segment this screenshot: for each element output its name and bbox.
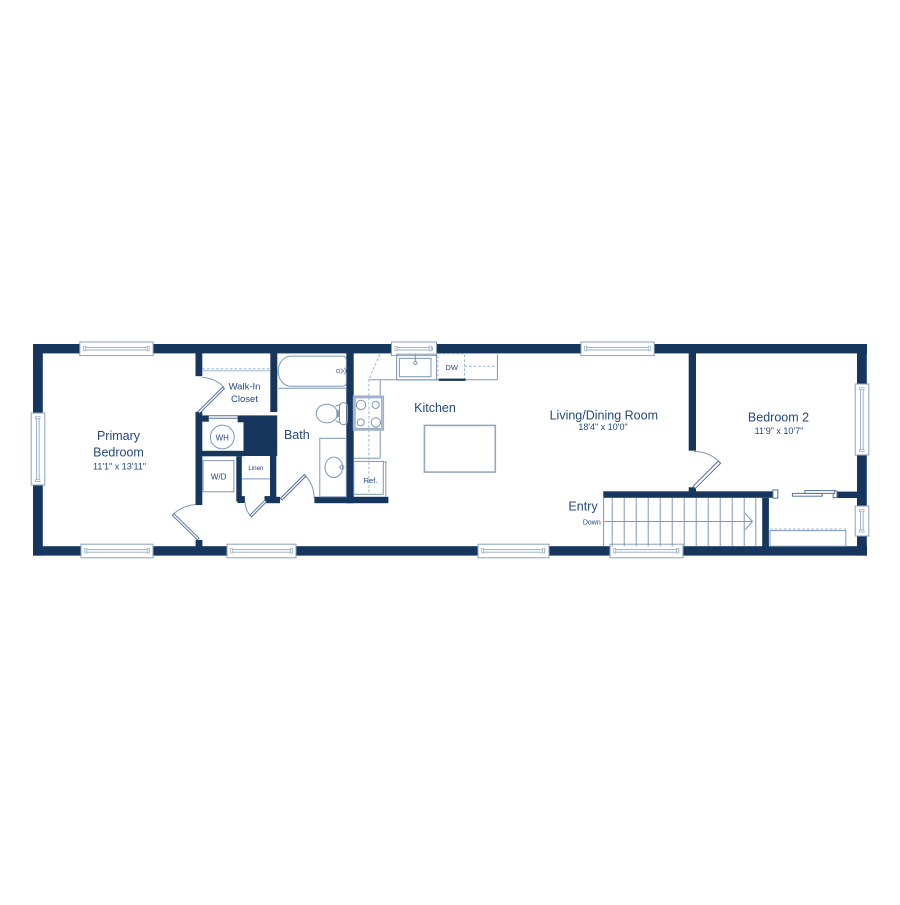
svg-text:11'9" x 10'7": 11'9" x 10'7" — [755, 426, 804, 436]
svg-text:Living/Dining Room: Living/Dining Room — [550, 408, 658, 422]
svg-text:Ref.: Ref. — [364, 476, 378, 485]
svg-text:Bedroom: Bedroom — [93, 446, 144, 460]
svg-text:Closet: Closet — [231, 394, 258, 405]
svg-text:Walk-In: Walk-In — [229, 382, 261, 393]
svg-text:Kitchen: Kitchen — [414, 401, 456, 415]
svg-text:DW: DW — [445, 363, 458, 372]
svg-text:Entry: Entry — [568, 500, 598, 514]
svg-text:Bath: Bath — [284, 428, 310, 442]
svg-text:Bedroom 2: Bedroom 2 — [748, 411, 809, 425]
svg-text:Linen: Linen — [248, 465, 264, 472]
svg-text:Down: Down — [583, 520, 601, 527]
svg-text:11'1" x 13'11": 11'1" x 13'11" — [93, 461, 146, 471]
svg-text:WH: WH — [216, 434, 230, 443]
svg-text:Primary: Primary — [97, 429, 141, 443]
svg-text:18'4" x 10'0": 18'4" x 10'0" — [578, 422, 627, 432]
svg-text:W/D: W/D — [211, 472, 227, 481]
